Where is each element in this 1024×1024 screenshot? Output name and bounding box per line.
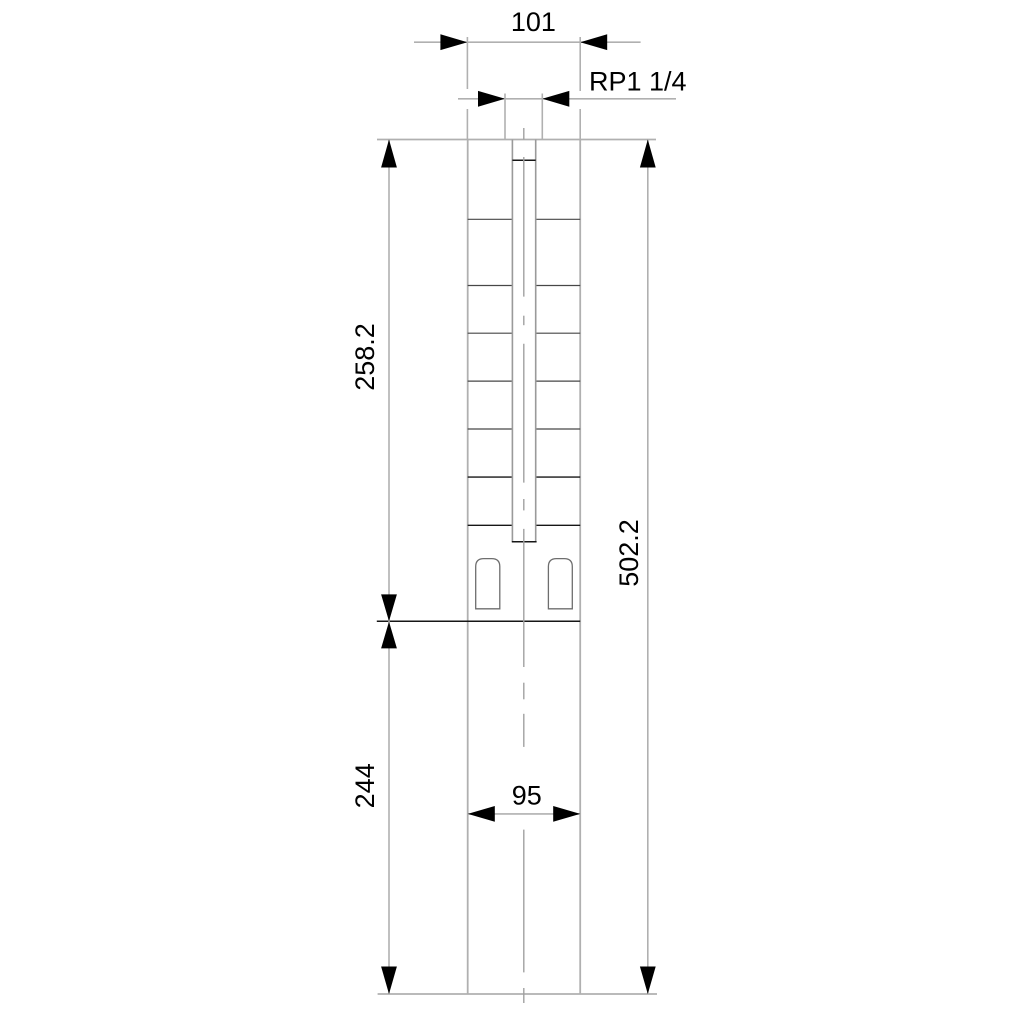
svg-text:258.2: 258.2: [350, 323, 380, 391]
svg-text:RP1 1/4: RP1 1/4: [589, 67, 687, 97]
svg-text:244: 244: [350, 763, 380, 808]
svg-text:502.2: 502.2: [614, 519, 644, 587]
svg-text:95: 95: [512, 781, 542, 811]
svg-text:101: 101: [511, 7, 556, 37]
